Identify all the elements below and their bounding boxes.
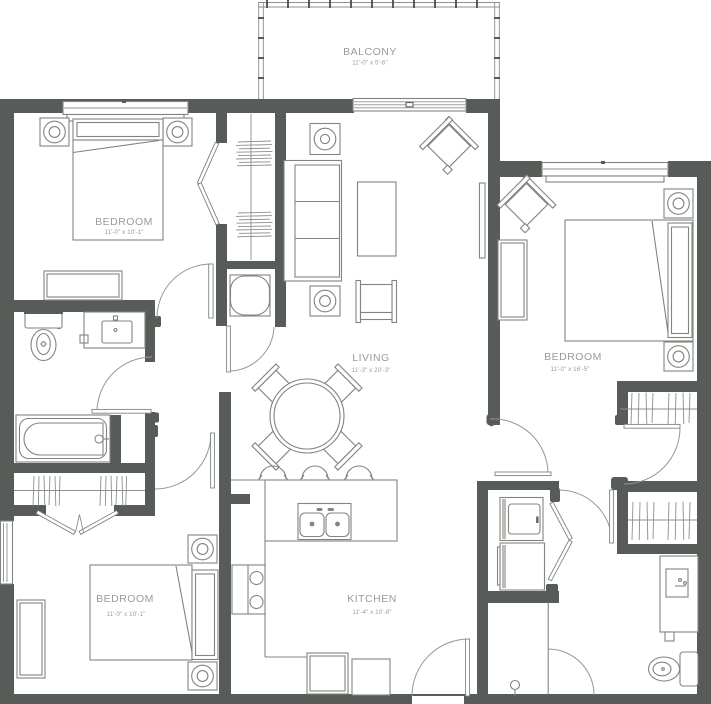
svg-text:11'-3" x 20'-3": 11'-3" x 20'-3"	[351, 367, 390, 374]
svg-text:BEDROOM: BEDROOM	[96, 593, 154, 605]
svg-text:11'-0" x 16'-5": 11'-0" x 16'-5"	[550, 366, 589, 373]
svg-text:LIVING: LIVING	[352, 352, 389, 364]
svg-text:11'-0" x 10'-1": 11'-0" x 10'-1"	[106, 611, 145, 618]
svg-text:BEDROOM: BEDROOM	[95, 216, 153, 228]
svg-text:11'-0" x 5'-6": 11'-0" x 5'-6"	[352, 60, 388, 67]
svg-text:BEDROOM: BEDROOM	[544, 351, 602, 363]
svg-text:11'-0" x 10'-1": 11'-0" x 10'-1"	[104, 229, 143, 236]
svg-text:KITCHEN: KITCHEN	[347, 593, 397, 605]
svg-text:11'-4" x 10'-8": 11'-4" x 10'-8"	[352, 609, 391, 616]
svg-text:BALCONY: BALCONY	[343, 46, 397, 58]
